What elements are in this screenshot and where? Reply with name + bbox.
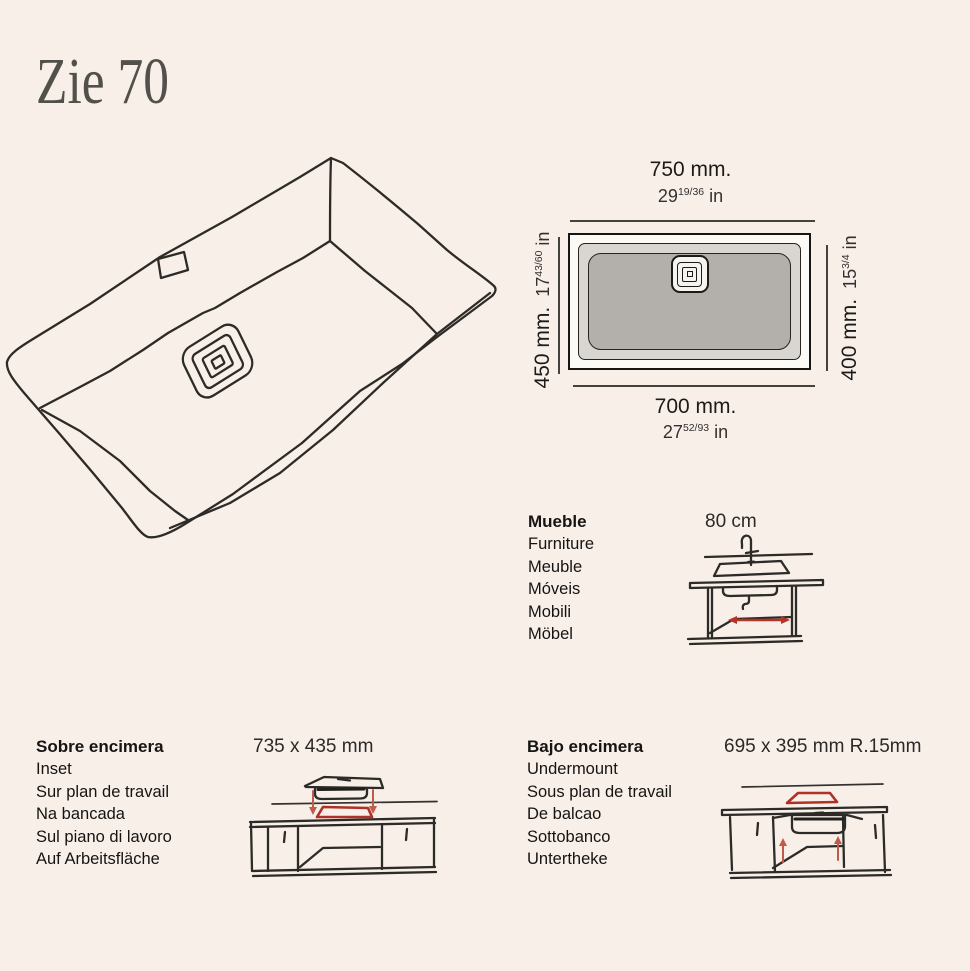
undermount-lang-pt: De balcao (527, 803, 672, 825)
cabinet-drawing (688, 528, 858, 663)
undermount-heading: Bajo encimera (527, 736, 672, 758)
cabinet-lang-it: Mobili (528, 601, 594, 623)
inset-lang-fr: Sur plan de travail (36, 781, 172, 803)
dim-right-label: 400 mm.153/4 in (834, 193, 860, 423)
dimension-diagram: 750 mm. 2919/36 in 450 mm.1743/60 in 400… (520, 150, 950, 460)
cabinet-lang-en: Furniture (528, 533, 594, 555)
dim-top-inches: 2919/36 in (568, 186, 813, 207)
undermount-lang-it: Sottobanco (527, 826, 672, 848)
undermount-cutout-outline (787, 793, 837, 803)
dim-line-left (558, 237, 560, 374)
sink-outline (7, 158, 496, 537)
faucet-icon (742, 536, 751, 565)
cabinet-lines (688, 536, 823, 644)
inset-mounting-drawing (240, 755, 445, 895)
cabinet-lang-de: Möbel (528, 623, 594, 645)
undermount-size-label: 695 x 395 mm R.15mm (724, 736, 921, 758)
sink-rim (578, 243, 801, 360)
dim-top-mm: 750 mm. (650, 158, 732, 181)
inset-lang-en: Inset (36, 758, 172, 780)
dim-left-label: 450 mm.1743/60 in (527, 195, 553, 425)
inset-sink-lines (250, 777, 437, 876)
cabinet-labels: Mueble Furniture Meuble Móveis Mobili Mö… (528, 511, 594, 645)
inset-lang-pt: Na bancada (36, 803, 172, 825)
inset-labels: Sobre encimera Inset Sur plan de travail… (36, 736, 172, 870)
cabinet-heading: Mueble (528, 511, 594, 533)
dim-bottom-label: 700 mm. (573, 395, 818, 419)
inset-cutout-outline (317, 807, 372, 817)
undermount-mounting-drawing (715, 765, 955, 905)
inset-heading: Sobre encimera (36, 736, 172, 758)
undermount-cabinet-lines (722, 784, 891, 878)
inset-lang-it: Sul piano di lavoro (36, 826, 172, 848)
inset-lang-de: Auf Arbeitsfläche (36, 848, 172, 870)
sink-perspective-drawing (0, 140, 520, 560)
dim-line-right (826, 245, 828, 371)
dim-line-bottom (573, 385, 815, 387)
dim-line-top (570, 220, 815, 222)
dim-top-label: 750 mm. (568, 158, 813, 182)
sink-basin (588, 253, 791, 350)
cabinet-lang-pt: Móveis (528, 578, 594, 600)
undermount-lang-de: Untertheke (527, 848, 672, 870)
drain-top-view-icon (671, 255, 709, 293)
cabinet-lang-fr: Meuble (528, 556, 594, 578)
undermount-lang-en: Undermount (527, 758, 672, 780)
drain-icon (179, 320, 257, 403)
undermount-lang-fr: Sous plan de travail (527, 781, 672, 803)
undermount-labels: Bajo encimera Undermount Sous plan de tr… (527, 736, 672, 870)
dim-bottom-inches: 2752/93 in (573, 422, 818, 443)
sink-top-view (568, 233, 811, 370)
product-title: Zie 70 (36, 44, 169, 120)
